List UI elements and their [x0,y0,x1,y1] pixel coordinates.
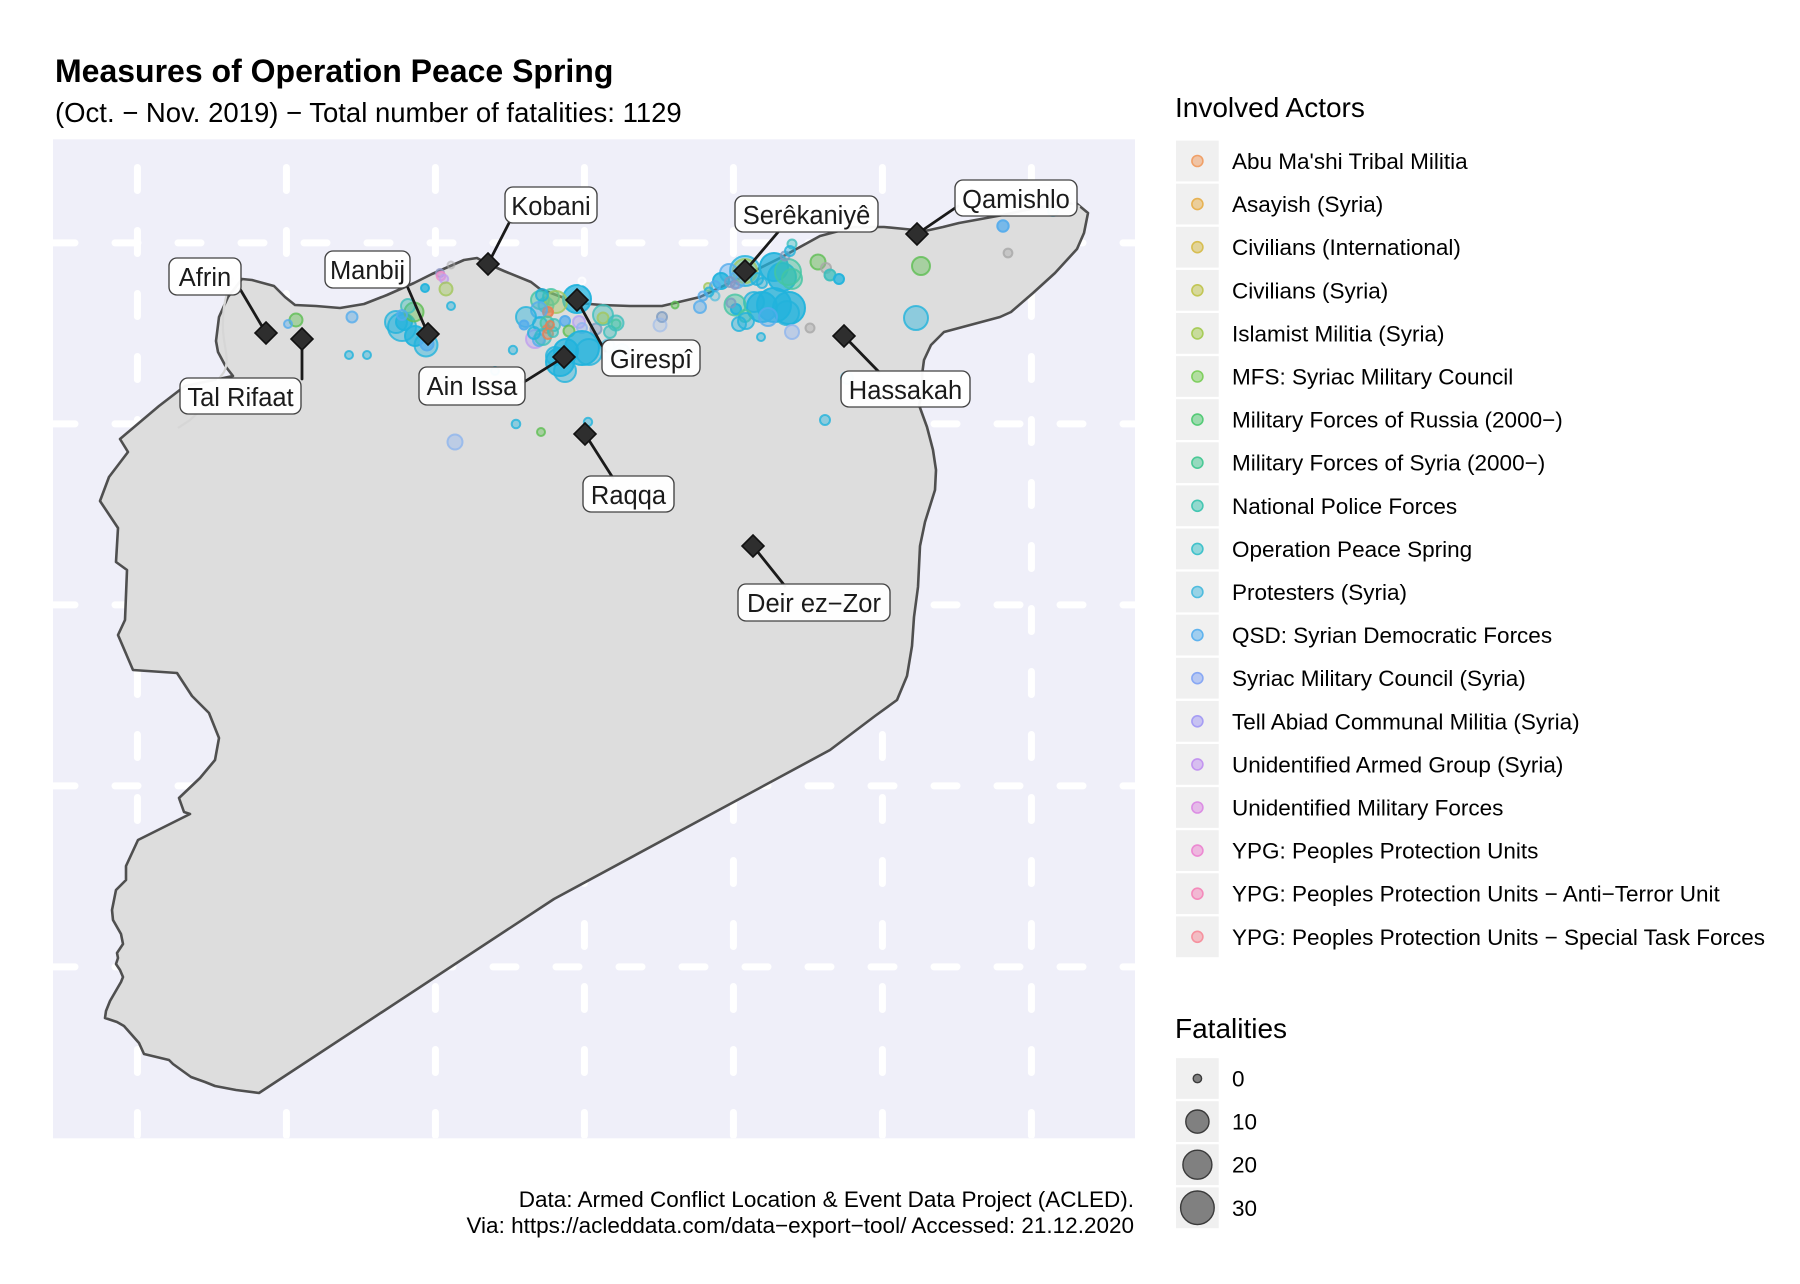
svg-text:Military Forces of Russia (200: Military Forces of Russia (2000−) [1232,408,1563,433]
svg-text:Protesters (Syria): Protesters (Syria) [1232,580,1407,605]
svg-text:Girespî: Girespî [610,346,693,374]
svg-text:Unidentified Military Forces: Unidentified Military Forces [1232,796,1503,821]
svg-text:10: 10 [1232,1110,1257,1135]
svg-text:QSD: Syrian Democratic Forces: QSD: Syrian Democratic Forces [1232,623,1552,648]
svg-text:Afrin: Afrin [179,264,231,292]
svg-text:Qamishlo: Qamishlo [962,186,1070,214]
svg-text:20: 20 [1232,1153,1257,1178]
svg-text:Data: Armed Conflict Location: Data: Armed Conflict Location & Event Da… [519,1187,1134,1212]
svg-text:Kobani: Kobani [511,193,590,221]
svg-text:Measures of Operation Peace Sp: Measures of Operation Peace Spring [55,53,613,89]
svg-text:Asayish (Syria): Asayish (Syria) [1232,192,1383,217]
svg-text:(Oct. − Nov. 2019) − Total num: (Oct. − Nov. 2019) − Total number of fat… [55,97,682,128]
svg-text:Civilians (International): Civilians (International) [1232,235,1461,260]
svg-text:Islamist Militia (Syria): Islamist Militia (Syria) [1232,321,1445,346]
svg-text:Raqqa: Raqqa [591,482,667,510]
svg-text:Abu Ma'shi Tribal Militia: Abu Ma'shi Tribal Militia [1232,149,1468,174]
svg-text:Fatalities: Fatalities [1175,1013,1287,1044]
svg-text:30: 30 [1232,1196,1257,1221]
svg-text:Serêkaniyê: Serêkaniyê [743,202,871,230]
svg-text:Ain Issa: Ain Issa [427,373,519,401]
svg-text:Via: https://acleddata.com/dat: Via: https://acleddata.com/data−export−t… [466,1213,1134,1238]
svg-text:Involved Actors: Involved Actors [1175,92,1365,123]
svg-text:Manbij: Manbij [330,257,405,285]
svg-text:Unidentified Armed Group (Syri: Unidentified Armed Group (Syria) [1232,752,1563,777]
svg-text:0: 0 [1232,1067,1245,1092]
svg-text:Syriac Military Council (Syria: Syriac Military Council (Syria) [1232,666,1526,691]
svg-text:Deir ez−Zor: Deir ez−Zor [747,590,881,618]
svg-text:YPG: Peoples Protection Units: YPG: Peoples Protection Units [1232,839,1538,864]
svg-text:National Police Forces: National Police Forces [1232,494,1457,519]
svg-text:YPG: Peoples Protection Units: YPG: Peoples Protection Units − Anti−Ter… [1232,882,1720,907]
svg-text:Hassakah: Hassakah [849,377,962,405]
svg-text:Military Forces of Syria (2000: Military Forces of Syria (2000−) [1232,451,1545,476]
svg-text:YPG: Peoples Protection Units: YPG: Peoples Protection Units − Special … [1232,925,1765,950]
svg-text:Operation Peace Spring: Operation Peace Spring [1232,537,1472,562]
svg-text:Tal Rifaat: Tal Rifaat [187,384,293,412]
svg-text:Tell Abiad Communal Militia (S: Tell Abiad Communal Militia (Syria) [1232,709,1580,734]
svg-text:Civilians (Syria): Civilians (Syria) [1232,278,1388,303]
svg-text:MFS: Syriac Military Council: MFS: Syriac Military Council [1232,365,1513,390]
